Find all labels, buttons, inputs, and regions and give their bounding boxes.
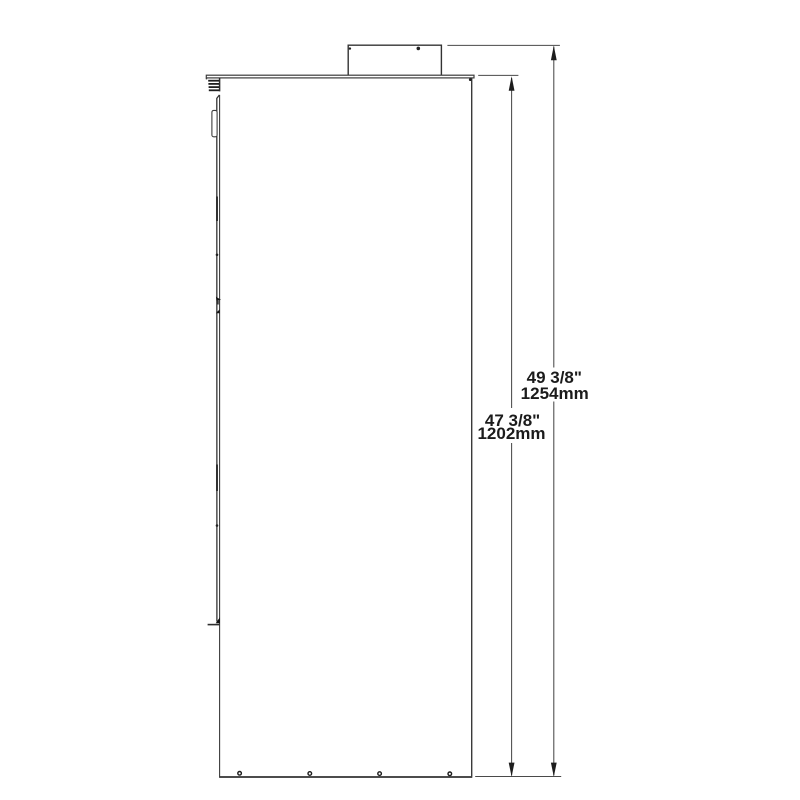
svg-text:1202mm: 1202mm [477,424,545,443]
svg-text:1254mm: 1254mm [521,384,589,403]
